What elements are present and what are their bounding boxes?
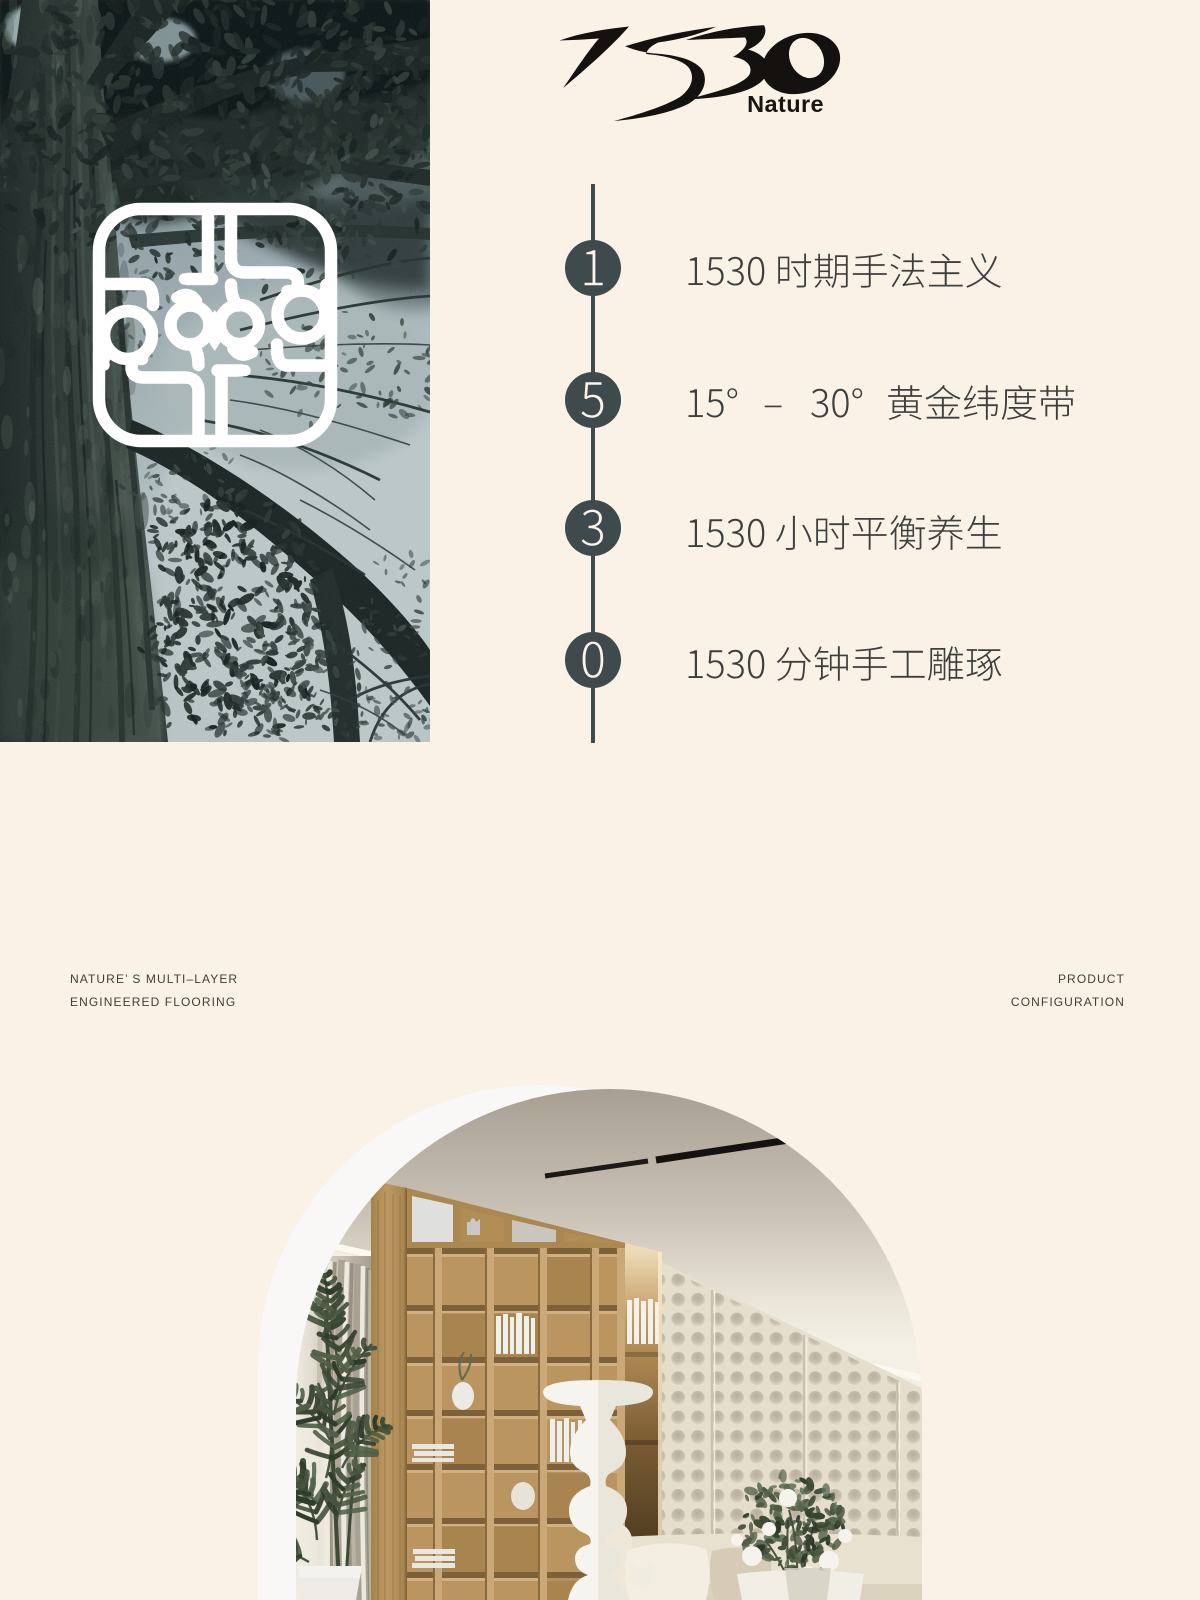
svg-text:Nature: Nature bbox=[747, 91, 824, 117]
